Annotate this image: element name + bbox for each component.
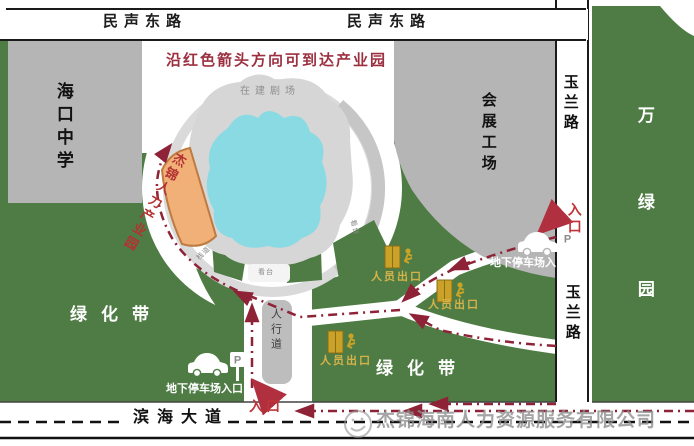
entrance-label-bottom: 入口 [249, 399, 283, 414]
road-label-minsheng-right: 民声东路 [347, 14, 431, 30]
pond [207, 111, 327, 248]
parking-sign-letter: P [234, 355, 241, 367]
minsheng-road [0, 9, 588, 40]
ring-small-label-stand: 看台 [258, 269, 274, 276]
place-label-wanlv-garden: 万绿园 [635, 106, 653, 367]
entrance-label-right: 入口 [567, 202, 582, 236]
staff-exit-label-2: 人员出口 [428, 300, 480, 312]
parking-entrance-label-left: 地下停车场入口 [166, 384, 243, 396]
school-block [8, 41, 142, 203]
place-label-haikou-school: 海口中学 [54, 82, 72, 174]
road-label-yulan-lower: 玉兰路 [564, 284, 580, 344]
watermark-text: 杰锦海南人力资源服务有限公司 [376, 411, 656, 431]
greenbelt-label-right: 绿化带 [376, 360, 469, 378]
parking-entrance-label-right: 地下停车场入口 [490, 258, 567, 270]
place-label-exhibition-workshop: 会展工场 [480, 92, 496, 176]
staff-exit-label-3: 人员出口 [320, 356, 372, 368]
theater-label: 在建剧场 [240, 87, 300, 98]
sidewalk-label: 人行道 [269, 308, 281, 353]
staff-exit-label-1: 人员出口 [371, 272, 423, 284]
road-label-yulan-upper: 玉兰路 [562, 74, 578, 134]
greenbelt-label-left: 绿化带 [70, 306, 163, 324]
road-label-binhai: 滨海大道 [133, 410, 229, 427]
route-notice: 沿红色箭头方向可到达产业园 [166, 53, 387, 69]
site-access-map: P P [0, 0, 694, 446]
road-label-minsheng-left: 民声东路 [103, 14, 187, 30]
